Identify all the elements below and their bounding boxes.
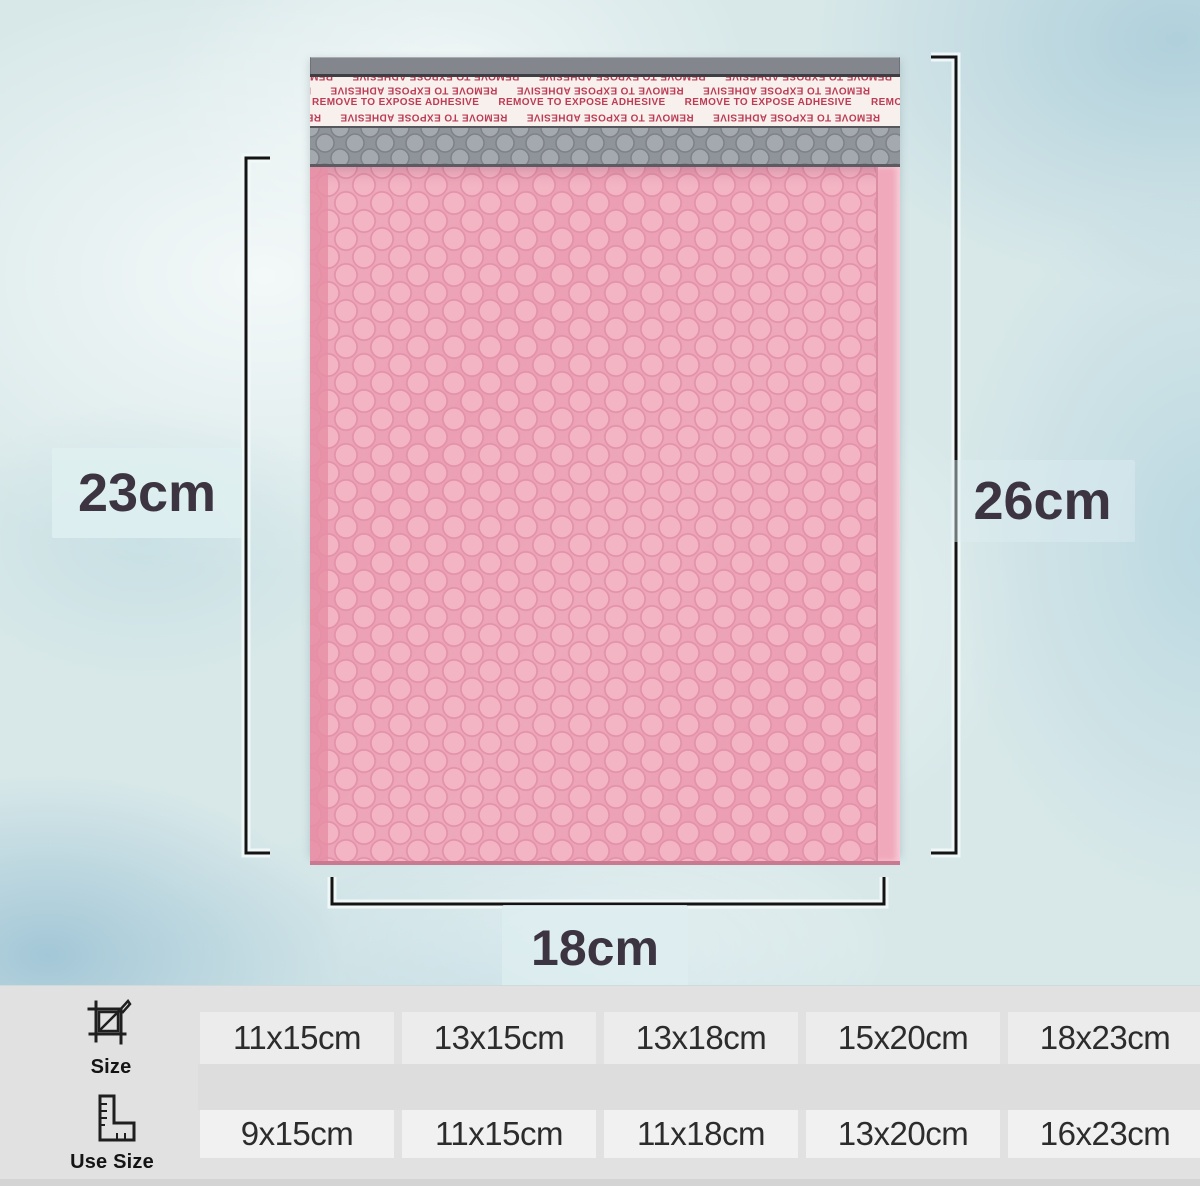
adhesive-strip: REMOVE TO EXPOSE ADHESIVE REMOVE TO EXPO… — [310, 74, 900, 128]
mailer-liner-top-edge — [310, 57, 900, 74]
size-value: 15x20cm — [806, 1012, 1000, 1064]
mailer-flap-bubble-band — [310, 128, 900, 167]
use-size-value: 9x15cm — [200, 1110, 394, 1158]
size-value: 13x15cm — [402, 1012, 596, 1064]
use-size-value: 16x23cm — [1008, 1110, 1200, 1158]
dimension-label-height-26cm: 26cm — [950, 460, 1135, 542]
dimension-label-height-23cm: 23cm — [52, 448, 242, 538]
size-value: 13x18cm — [604, 1012, 798, 1064]
adhesive-strip-text-row: REMOVE TO EXPOSE ADHESIVE REMOVE TO EXPO… — [310, 96, 900, 110]
table-row-divider — [198, 1064, 1200, 1110]
use-size-row-label: Use Size — [64, 1151, 160, 1174]
crop-size-icon — [85, 998, 133, 1048]
product-image: REMOVE TO EXPOSE ADHESIVE REMOVE TO EXPO… — [0, 0, 1200, 1186]
adhesive-strip-text-row: REMOVE TO EXPOSE ADHESIVE REMOVE TO EXPO… — [310, 110, 900, 124]
size-value: 11x15cm — [200, 1012, 394, 1064]
use-size-value: 13x20cm — [806, 1110, 1000, 1158]
size-row-label: Size — [78, 1056, 144, 1079]
size-table: Size Use Size 11x15cm 13x15cm 13x18cm 15… — [0, 985, 1200, 1186]
mailer-right-seal-edge — [876, 167, 900, 861]
bubble-mailer: REMOVE TO EXPOSE ADHESIVE REMOVE TO EXPO… — [310, 57, 900, 855]
size-value: 18x23cm — [1008, 1012, 1200, 1064]
mailer-body — [310, 167, 900, 865]
adhesive-strip-text-row: REMOVE TO EXPOSE ADHESIVE REMOVE TO EXPO… — [310, 74, 900, 83]
use-size-value: 11x15cm — [402, 1110, 596, 1158]
ruler-square-icon — [90, 1092, 138, 1144]
table-bottom-edge — [0, 1179, 1200, 1186]
adhesive-strip-text-row: REMOVE TO EXPOSE ADHESIVE REMOVE TO EXPO… — [310, 83, 900, 97]
mailer-left-seal-edge — [310, 167, 328, 861]
use-size-value: 11x18cm — [604, 1110, 798, 1158]
